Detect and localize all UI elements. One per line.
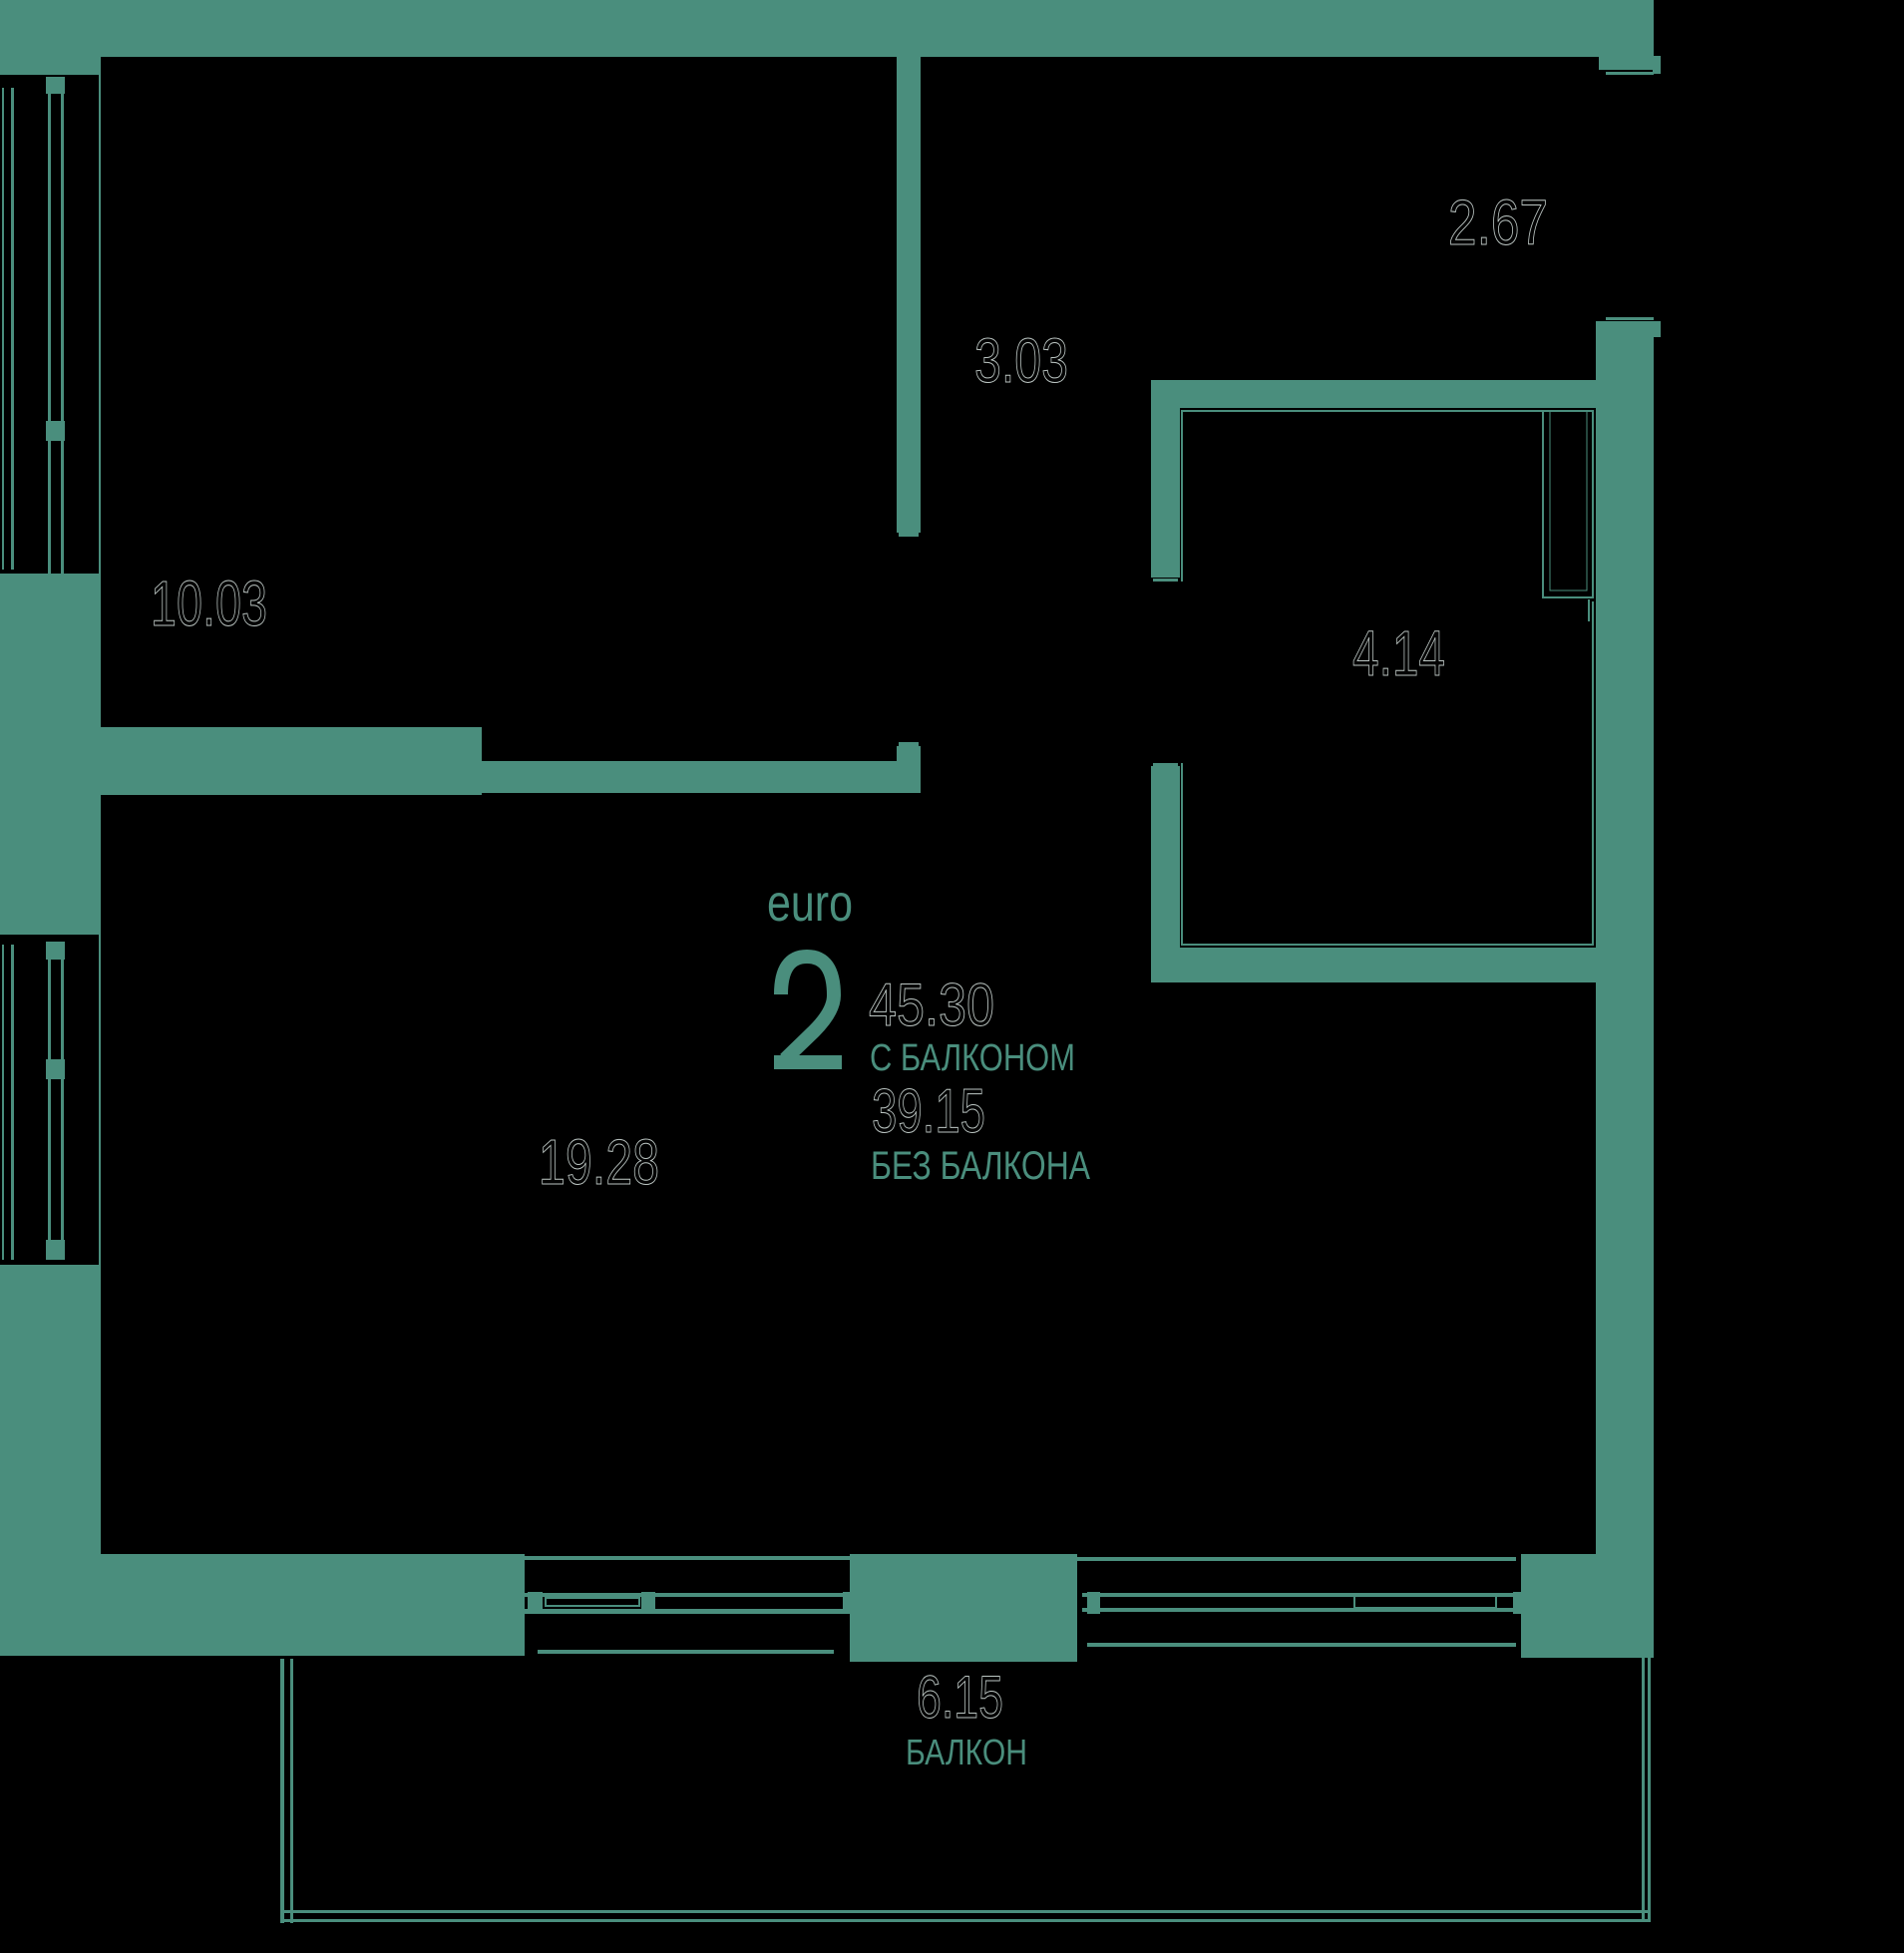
svg-text:4.14: 4.14 [1352,617,1445,689]
svg-text:39.15: 39.15 [872,1077,985,1146]
svg-text:С БАЛКОНОМ: С БАЛКОНОМ [870,1037,1075,1079]
svg-text:6.15: 6.15 [917,1664,1003,1731]
svg-text:2.67: 2.67 [1448,187,1548,258]
svg-text:10.03: 10.03 [151,568,267,639]
svg-text:45.30: 45.30 [869,972,994,1038]
svg-text:euro: euro [767,875,853,933]
svg-text:БЕЗ БАЛКОНА: БЕЗ БАЛКОНА [871,1144,1090,1188]
svg-text:3.03: 3.03 [974,326,1068,396]
svg-text:БАЛКОН: БАЛКОН [906,1732,1027,1772]
svg-text:19.28: 19.28 [539,1126,659,1198]
